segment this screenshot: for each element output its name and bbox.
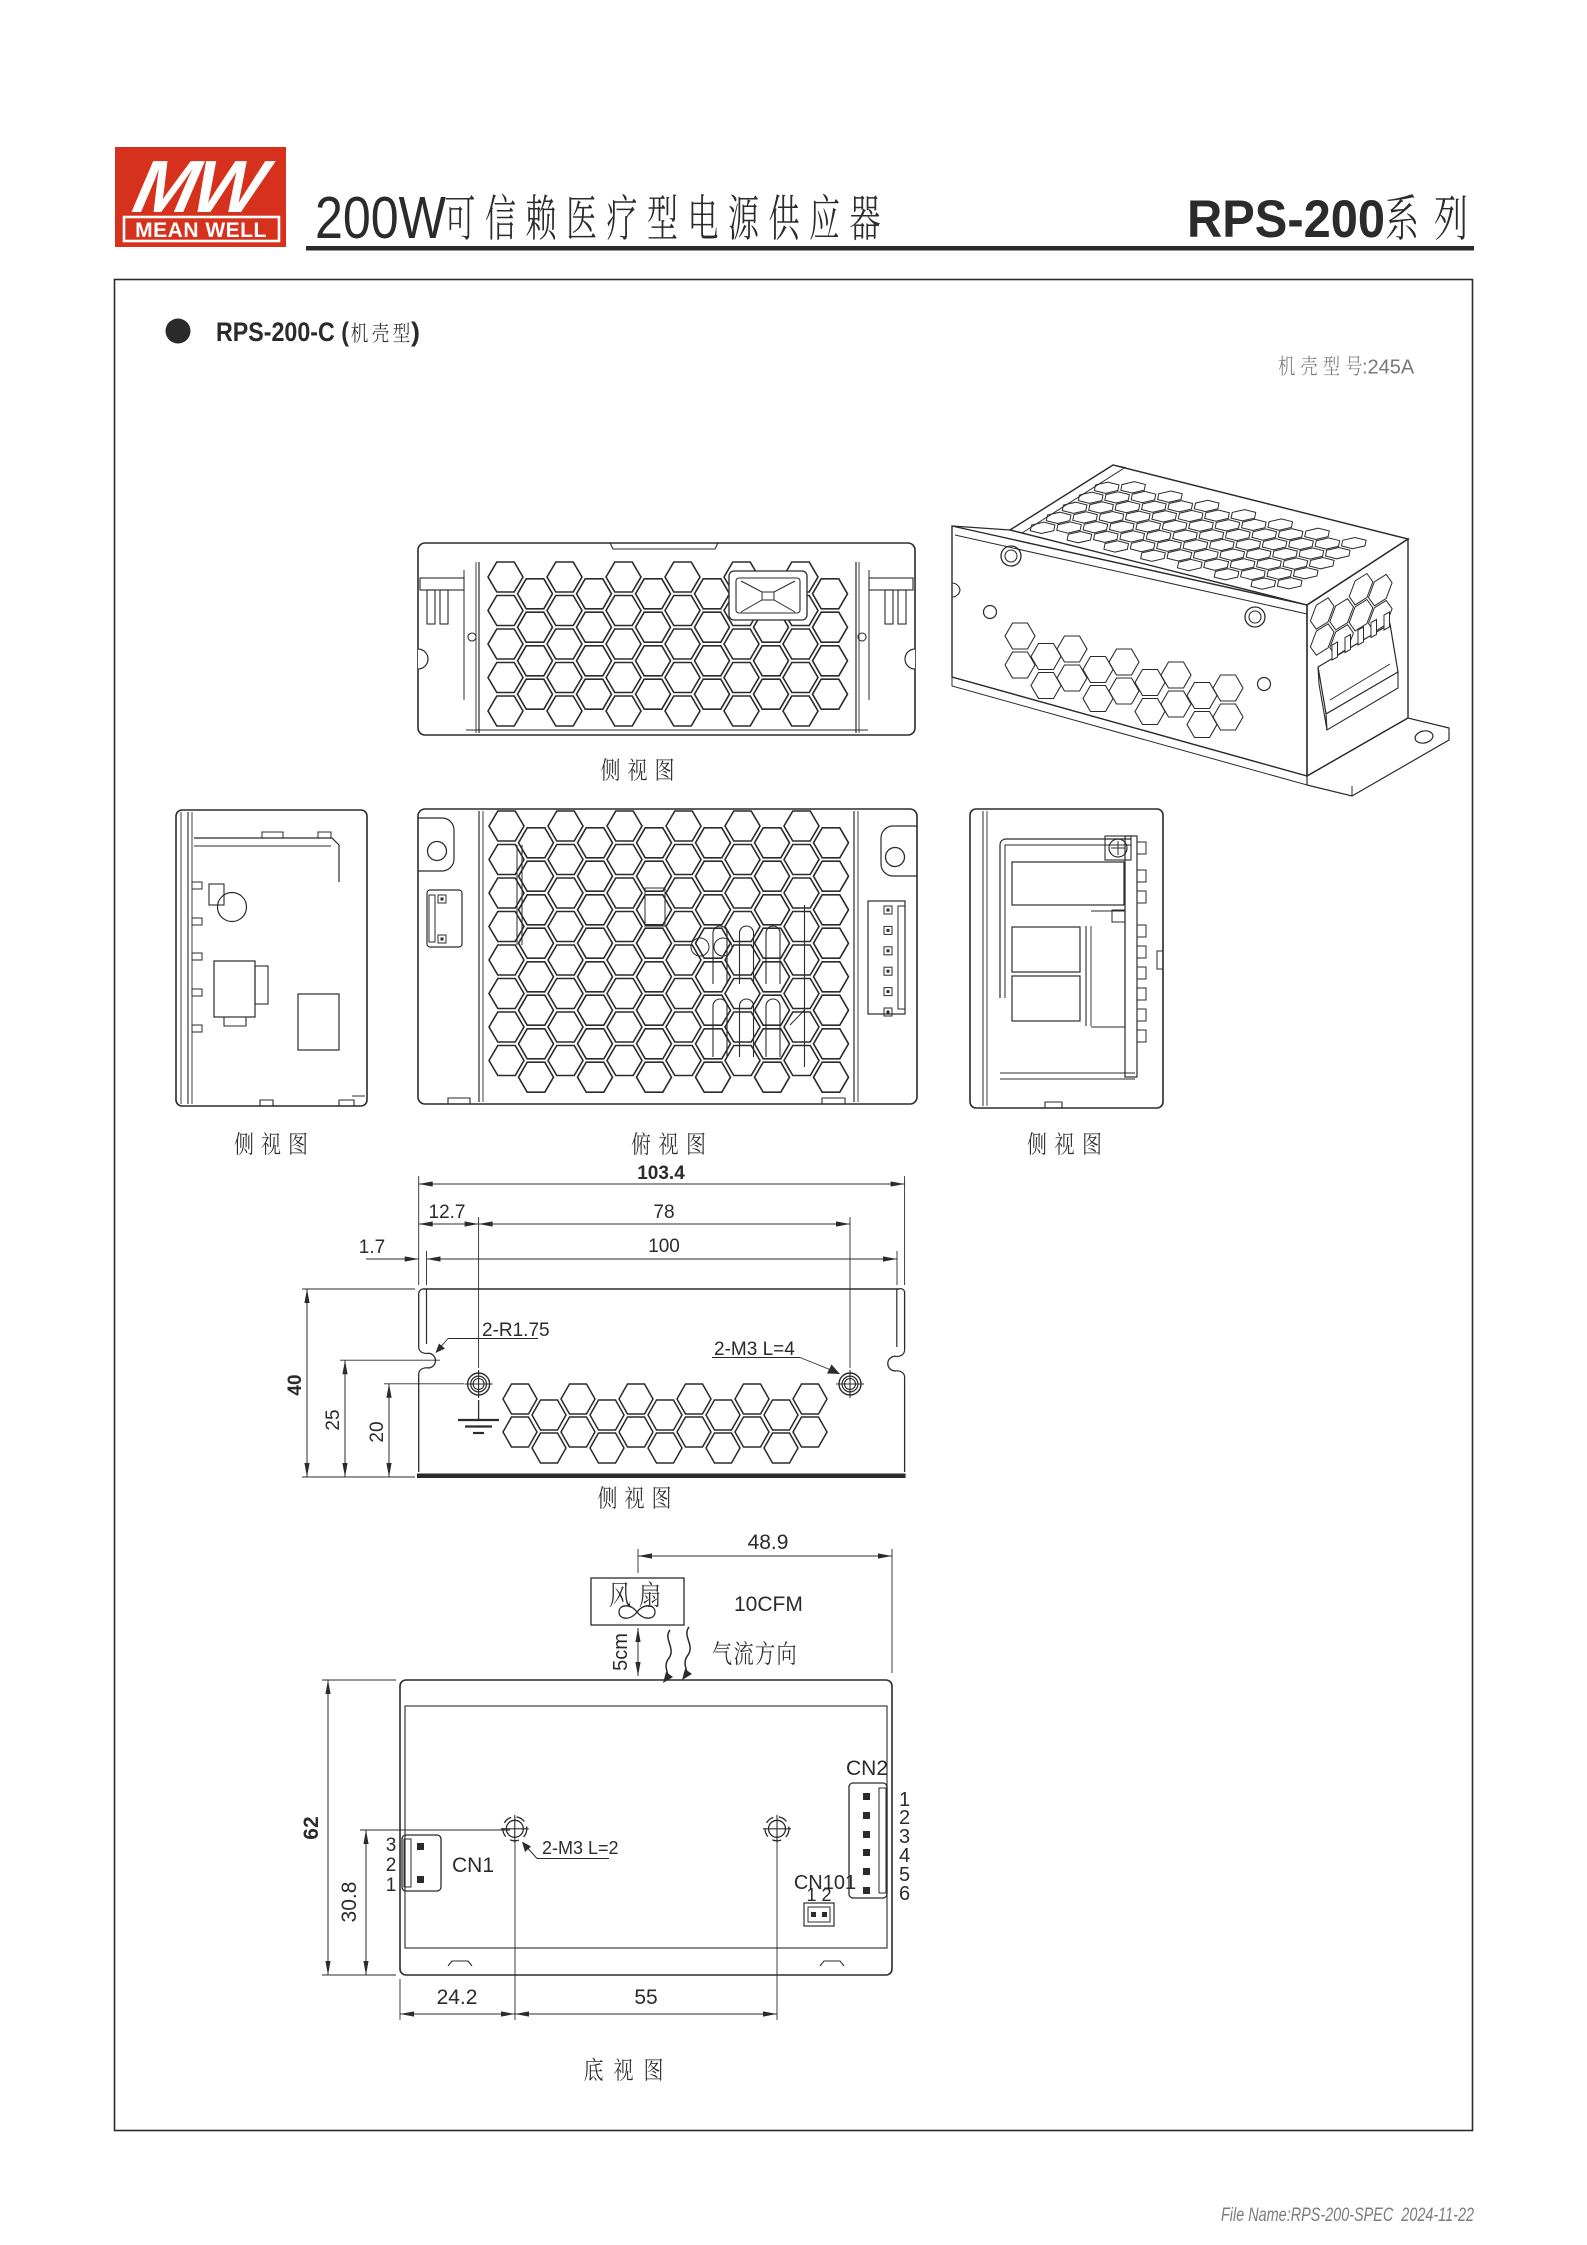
svg-text:200W: 200W: [315, 185, 446, 251]
svg-text:RPS-200-C (: RPS-200-C (: [216, 317, 349, 347]
svg-text:5cm: 5cm: [610, 1633, 632, 1671]
svg-text:24.2: 24.2: [437, 1986, 478, 2009]
svg-text:100: 100: [648, 1236, 680, 1257]
svg-text:30.8: 30.8: [338, 1882, 361, 1923]
svg-text:1 2: 1 2: [806, 1885, 831, 1905]
svg-text:CN2: CN2: [846, 1757, 888, 1780]
svg-text:CN1: CN1: [452, 1854, 494, 1877]
svg-text:20: 20: [367, 1421, 388, 1442]
svg-text:10CFM: 10CFM: [734, 1593, 803, 1616]
svg-text:2: 2: [386, 1855, 397, 1876]
svg-text:2-M3 L=2: 2-M3 L=2: [542, 1838, 619, 1858]
svg-text:78: 78: [653, 1202, 674, 1223]
svg-text:55: 55: [634, 1986, 657, 2009]
svg-text:): ): [411, 317, 420, 347]
svg-text:File Name:RPS-200-SPEC 2024-1: File Name:RPS-200-SPEC 2024-11-22: [1221, 2205, 1474, 2226]
svg-text:6: 6: [899, 1883, 910, 1905]
svg-text:40: 40: [285, 1374, 306, 1395]
svg-text:MEAN WELL: MEAN WELL: [135, 219, 267, 242]
svg-text:2-M3 L=4: 2-M3 L=4: [714, 1339, 795, 1360]
svg-text:62: 62: [300, 1816, 323, 1839]
svg-text:1.7: 1.7: [359, 1237, 385, 1258]
svg-text:103.4: 103.4: [637, 1163, 685, 1184]
svg-text:12.7: 12.7: [429, 1202, 466, 1223]
svg-text:RPS-200: RPS-200: [1187, 190, 1385, 249]
svg-text:3: 3: [386, 1835, 397, 1856]
svg-text::245A: :245A: [1362, 357, 1415, 379]
svg-text:2-R1.75: 2-R1.75: [482, 1320, 550, 1341]
svg-text:1: 1: [386, 1875, 397, 1896]
svg-text:25: 25: [323, 1409, 344, 1430]
svg-text:48.9: 48.9: [748, 1531, 789, 1554]
